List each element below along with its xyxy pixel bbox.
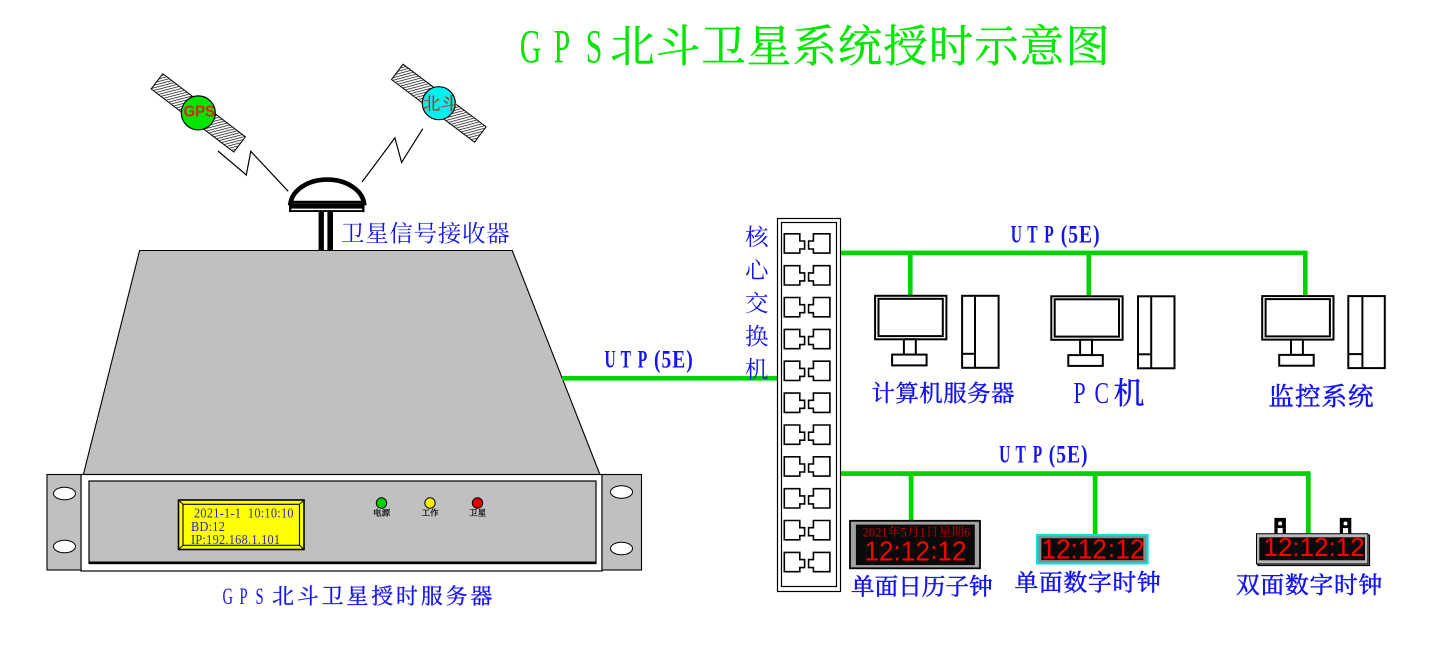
svg-text:12: 12 xyxy=(1116,534,1145,565)
svg-text:P: P xyxy=(554,19,571,73)
svg-text:U: U xyxy=(1011,221,1022,249)
svg-text:12:12: 12:12 xyxy=(1042,534,1107,565)
svg-text:T: T xyxy=(1016,441,1026,469)
svg-text:G: G xyxy=(223,585,234,610)
svg-text:U: U xyxy=(999,441,1010,469)
svg-text:GPS: GPS xyxy=(184,103,215,121)
svg-text:P: P xyxy=(1074,375,1086,410)
svg-text:(5E): (5E) xyxy=(654,345,694,373)
svg-text:U: U xyxy=(605,346,616,374)
svg-text:12:12:12: 12:12:12 xyxy=(1264,532,1365,562)
svg-text:T: T xyxy=(621,346,631,374)
svg-text:12:12: 12:12 xyxy=(865,536,930,567)
svg-text:G: G xyxy=(520,19,541,73)
svg-text:P: P xyxy=(1044,221,1054,249)
svg-text:(5E): (5E) xyxy=(1061,220,1101,248)
svg-text:S: S xyxy=(586,19,603,73)
svg-text:12: 12 xyxy=(938,536,967,567)
svg-text:P: P xyxy=(240,585,248,610)
svg-text:(5E): (5E) xyxy=(1049,440,1089,468)
svg-text:S: S xyxy=(256,585,264,610)
svg-text:P: P xyxy=(1033,441,1043,469)
svg-text:IP:192.168.1.101: IP:192.168.1.101 xyxy=(191,531,280,547)
svg-text:C: C xyxy=(1095,375,1109,410)
svg-text:T: T xyxy=(1027,221,1037,249)
svg-text:P: P xyxy=(638,346,648,374)
